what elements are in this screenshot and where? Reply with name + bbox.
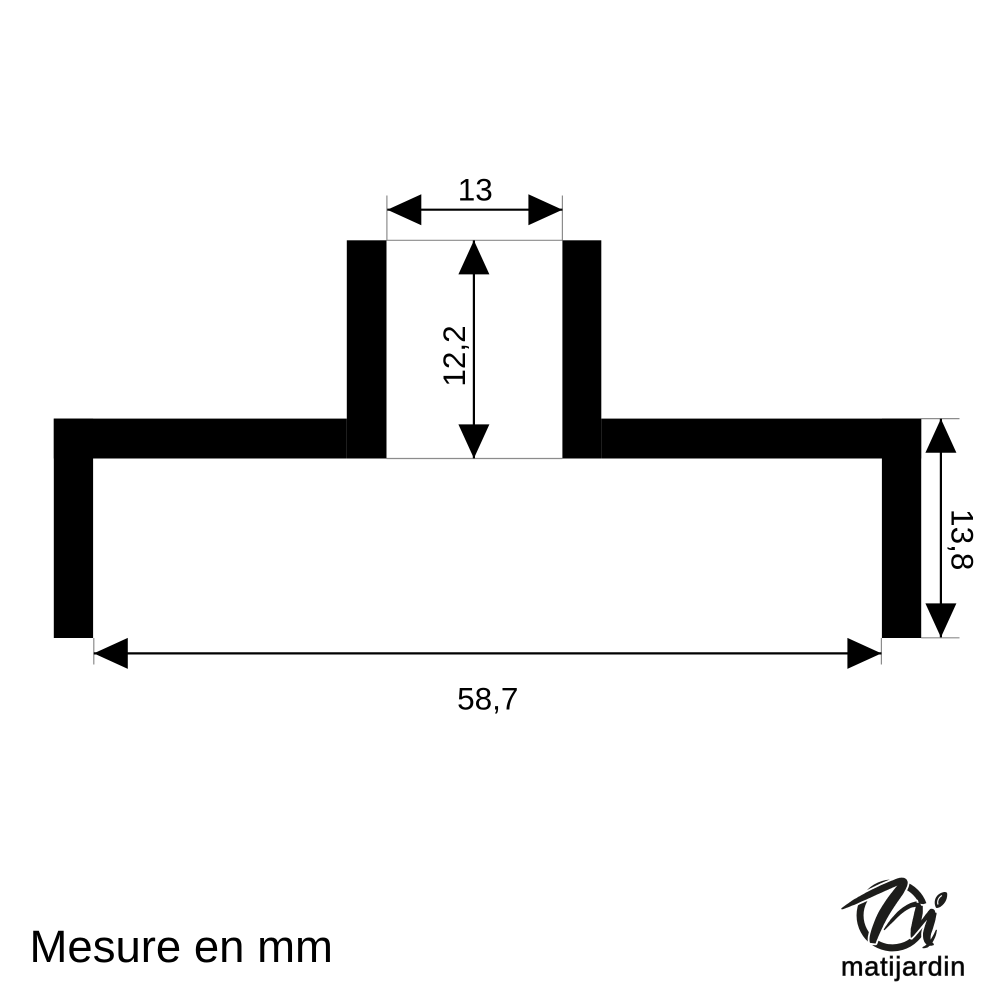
svg-text:Mesure en mm: Mesure en mm [30, 921, 333, 972]
svg-text:12,2: 12,2 [436, 325, 472, 386]
svg-text:58,7: 58,7 [457, 681, 518, 717]
svg-text:matijardin: matijardin [841, 952, 966, 982]
svg-text:13,8: 13,8 [945, 509, 981, 570]
svg-text:13: 13 [458, 172, 493, 208]
